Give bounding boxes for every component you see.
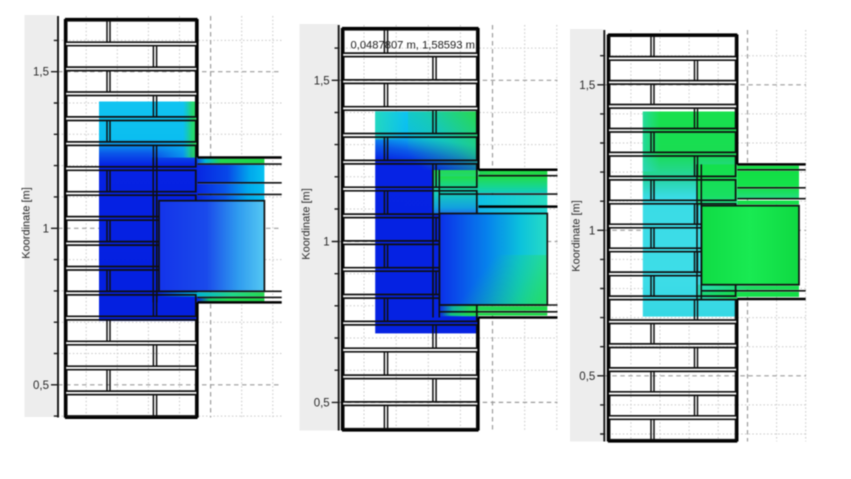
svg-text:1,5: 1,5 bbox=[579, 80, 595, 92]
svg-text:0,5: 0,5 bbox=[33, 380, 49, 392]
svg-text:0,5: 0,5 bbox=[314, 397, 330, 409]
svg-text:1: 1 bbox=[589, 225, 595, 237]
svg-text:Koordinate [m]: Koordinate [m] bbox=[571, 200, 583, 272]
svg-text:1: 1 bbox=[43, 223, 49, 235]
svg-text:Koordinate [m]: Koordinate [m] bbox=[301, 188, 313, 260]
svg-text:1,5: 1,5 bbox=[33, 67, 49, 79]
svg-text:Koordinate [m]: Koordinate [m] bbox=[21, 187, 33, 259]
svg-text:1: 1 bbox=[323, 237, 329, 249]
svg-text:0,5: 0,5 bbox=[579, 371, 595, 383]
svg-text:1,5: 1,5 bbox=[314, 75, 330, 87]
svg-text:0,0487807 m, 1,58593 m: 0,0487807 m, 1,58593 m bbox=[351, 39, 475, 51]
